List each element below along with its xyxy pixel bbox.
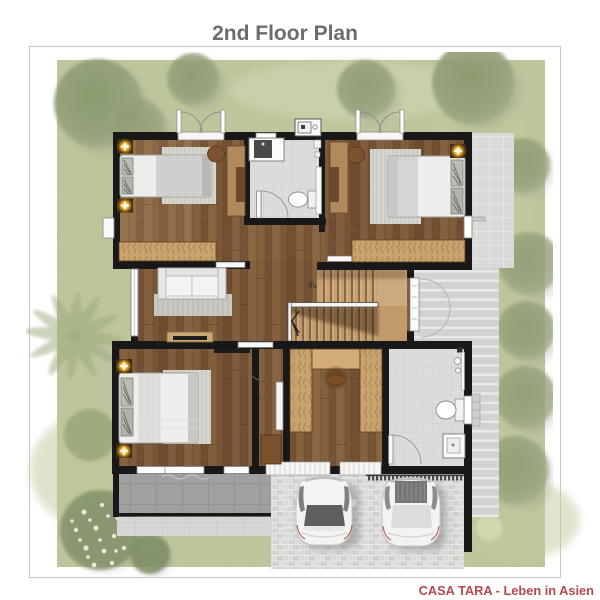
svg-text:2nd Floor Plan: 2nd Floor Plan xyxy=(212,22,358,45)
svg-text:ขึ้น: ขึ้น xyxy=(308,281,317,290)
svg-text:CASA TARA - Leben in Asien: CASA TARA - Leben in Asien xyxy=(419,583,595,598)
